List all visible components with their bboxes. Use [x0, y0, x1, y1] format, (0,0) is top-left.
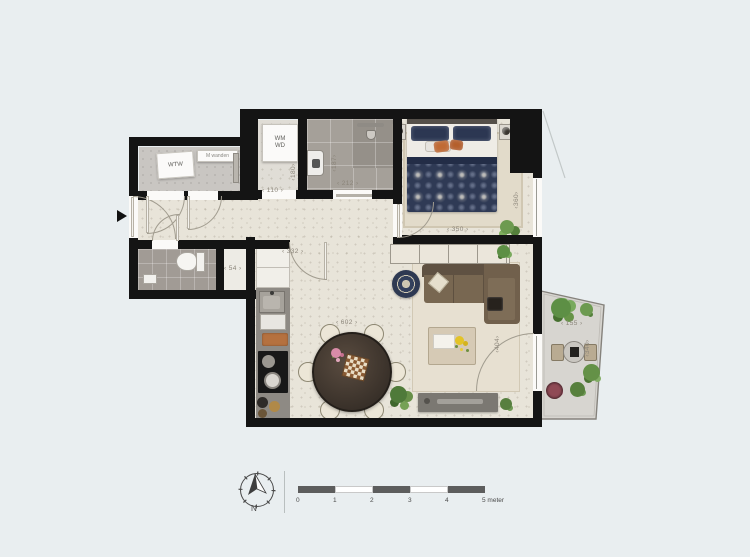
- dim-living-depth: 404: [494, 329, 502, 359]
- bowl-brown: [258, 409, 267, 418]
- dim-laundry-depth: 180: [290, 157, 298, 187]
- bedroom-window: [533, 178, 542, 237]
- dim-value: 54: [229, 265, 237, 272]
- pot-icon: [264, 372, 281, 389]
- scale-bar: 0 1 2 3 4 5 meter: [298, 486, 485, 508]
- dim-value: 212: [342, 180, 354, 187]
- balcony-plant-right: [583, 364, 600, 381]
- pillow-orange-1: [433, 140, 449, 153]
- side-tray-table: [487, 297, 503, 311]
- wd-label: WD: [275, 143, 285, 150]
- facade-diagonal-line: [540, 106, 570, 186]
- lamp-right-icon: [502, 127, 510, 135]
- faucet-icon: [270, 291, 274, 295]
- dim-bedroom-width: 350: [447, 226, 469, 234]
- scale-tick: 1: [333, 497, 337, 504]
- storage-plate-label: M wanden: [206, 153, 229, 159]
- scale-tick: 4: [445, 497, 449, 504]
- duvet-fold: [407, 157, 497, 164]
- balcony-shrub-small: [580, 303, 593, 316]
- entrance-arrow-icon: [117, 210, 127, 222]
- wardrobe-plant: [497, 245, 510, 258]
- bath-sink: [307, 150, 324, 176]
- dim-living-entry: 332: [282, 248, 304, 256]
- wall: [246, 418, 542, 427]
- kitchen-sink: [259, 291, 285, 313]
- wc-sink: [143, 274, 157, 284]
- wall: [533, 240, 542, 334]
- bed: [407, 118, 497, 212]
- tulip-bouquet: [455, 336, 464, 345]
- wall: [240, 109, 542, 119]
- magazine: [433, 334, 455, 349]
- scale-tick: 3: [408, 497, 412, 504]
- bedroom-plant: [500, 220, 514, 234]
- compass-north-label: N: [251, 504, 257, 513]
- dim-bedroom-depth: 360: [513, 185, 521, 215]
- dim-value: 340: [584, 342, 592, 354]
- shower-bar: [357, 123, 384, 127]
- bedroom-window-glass: [536, 179, 537, 236]
- wtw-unit: WTW: [156, 151, 195, 180]
- dim-value: 187: [331, 157, 339, 169]
- toilet-tank: [196, 252, 205, 272]
- scale-segment: [410, 486, 447, 493]
- wall: [129, 137, 249, 146]
- dim-living-width: 602: [336, 319, 358, 327]
- wm-label: WM: [275, 136, 286, 143]
- scale-tick: 0: [296, 497, 300, 504]
- compass-needle-light: [255, 474, 266, 493]
- balcony-table-tray: [570, 347, 579, 357]
- cutting-board: [262, 333, 288, 346]
- scale-segment: [448, 486, 485, 493]
- dim-value: 110: [267, 187, 279, 194]
- wardrobe: [390, 244, 510, 264]
- dim-value: 404: [494, 338, 502, 350]
- wall: [298, 117, 307, 192]
- dim-closet-width: 54: [224, 265, 242, 273]
- dim-bath-depth: 187: [331, 148, 339, 178]
- dim-balcony-width: 155: [561, 320, 583, 328]
- wall: [129, 137, 138, 196]
- pillow-orange-2: [449, 139, 463, 151]
- scale-segment: [373, 486, 410, 493]
- storage-plate: M wanden: [197, 150, 238, 162]
- bathroom-slider-panel: [336, 194, 372, 197]
- toilet-bowl: [176, 252, 197, 271]
- pillow-navy-left: [411, 126, 449, 141]
- wall: [129, 290, 256, 299]
- wall: [393, 235, 542, 244]
- living-plant: [390, 386, 407, 403]
- wall: [246, 237, 255, 427]
- bath-sink-basin: [312, 159, 320, 168]
- cooktop: [258, 351, 288, 393]
- wall: [240, 109, 258, 192]
- dim-value: 360: [513, 194, 521, 206]
- bowl-tan: [269, 401, 280, 412]
- dim-balcony-depth: 340: [584, 333, 592, 363]
- compass: N: [236, 469, 280, 515]
- wtw-label: WTW: [168, 161, 183, 168]
- pillow-navy-right: [453, 126, 491, 141]
- dim-value: 602: [341, 319, 353, 326]
- round-rug: [392, 270, 420, 298]
- footer-divider: [284, 471, 285, 513]
- scale-end-label: 5 meter: [482, 497, 504, 504]
- storage-radiator: [233, 153, 239, 183]
- scale-tick: 2: [370, 497, 374, 504]
- dim-laundry-width: 110: [262, 187, 283, 195]
- scale-segment: [335, 486, 372, 493]
- dim-value: 155: [566, 320, 578, 327]
- wall: [216, 246, 224, 299]
- shower-head-icon: [366, 130, 376, 140]
- dim-value: 332: [287, 248, 299, 255]
- balcony-door-opening: [533, 334, 542, 391]
- soundbar: [437, 399, 483, 404]
- floorplan-page: { "rooms": { "storage": { "unit_label": …: [0, 0, 750, 557]
- wc-door-opening: [152, 240, 178, 249]
- console-plant: [500, 398, 512, 410]
- coffee-table: [428, 327, 476, 365]
- scale-segment: [298, 486, 335, 493]
- balcony-flower-pot: [546, 382, 563, 399]
- dim-value: 350: [452, 226, 464, 233]
- dim-value: 180: [290, 166, 298, 178]
- balcony-door-glass: [536, 336, 537, 389]
- sink-basin: [263, 296, 280, 309]
- balcony-plant-mid: [570, 382, 585, 397]
- table-flowers: [331, 348, 341, 358]
- kitchen-appliance: [260, 314, 286, 330]
- balcony-table: [563, 341, 585, 363]
- pan-icon: [262, 355, 275, 368]
- console-decor: [424, 398, 430, 404]
- shaft: [510, 109, 542, 173]
- bowl-dark: [257, 397, 268, 408]
- dim-bath-width: 212: [337, 180, 359, 188]
- balcony-shrub-large: [551, 298, 571, 318]
